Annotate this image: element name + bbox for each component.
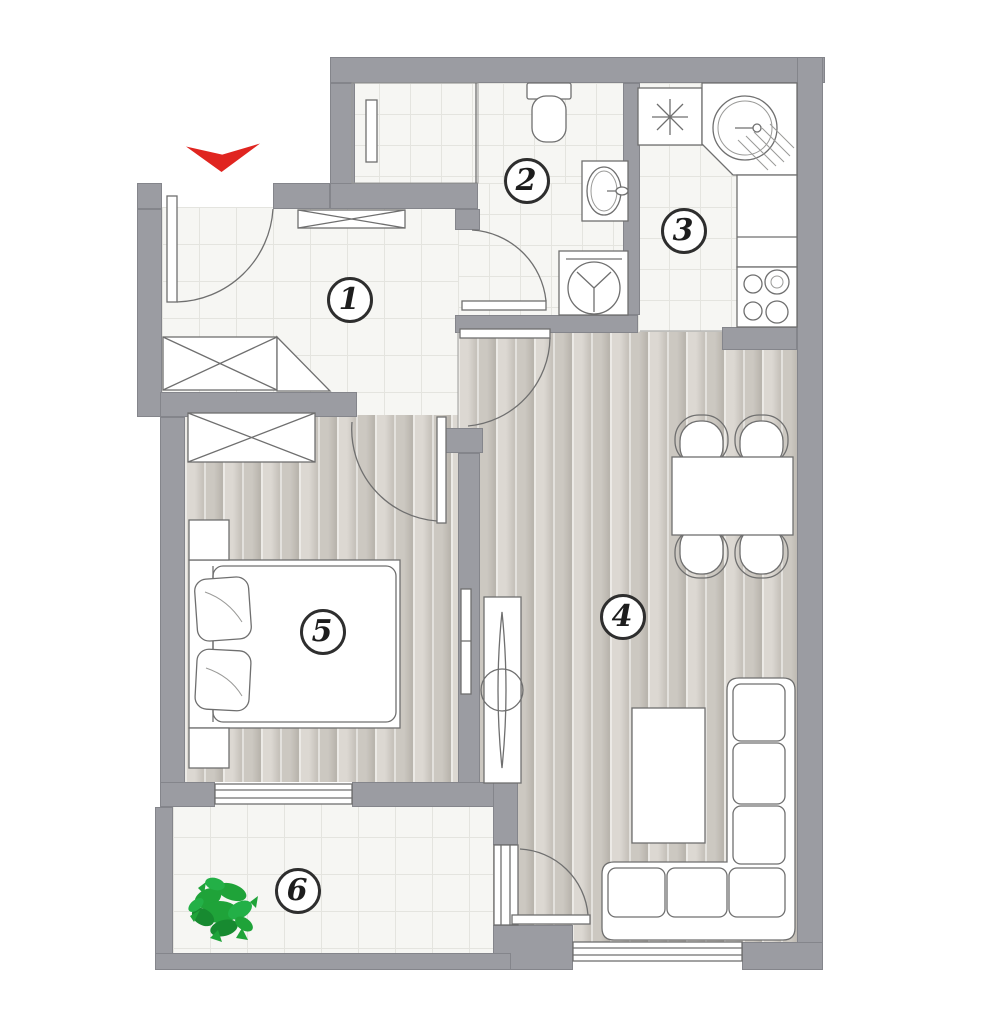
room-number: 2 — [516, 166, 537, 196]
wall-living-bottom-right — [742, 942, 823, 970]
entrance-arrow — [186, 142, 260, 172]
wall-bathroom-door-stub — [455, 209, 480, 230]
wall-entry-corner — [137, 183, 162, 209]
room-number: 3 — [673, 216, 694, 246]
room-badge-living-room: 4 — [600, 594, 646, 640]
balcony-floor — [173, 800, 493, 955]
kitchen-floor — [638, 83, 797, 332]
wall-door-block — [440, 428, 483, 453]
wall-bathroom-kitchen — [623, 83, 640, 315]
wall-balcony-left — [155, 807, 173, 968]
room-badge-balcony: 6 — [275, 868, 321, 914]
room-badge-hall: 1 — [327, 277, 373, 323]
room-number: 5 — [312, 617, 333, 647]
wall-hall-bottom — [160, 392, 357, 417]
wall-hall-top-right — [273, 183, 330, 209]
bathroom-floor-upper — [348, 83, 625, 183]
wall-balcony-bottom — [155, 953, 511, 970]
wall-kitchen-bottom — [722, 327, 797, 350]
wall-bedroom-left — [160, 417, 185, 783]
room-badge-kitchen: 3 — [661, 208, 707, 254]
room-badge-bathroom: 2 — [504, 158, 550, 204]
room-number: 4 — [612, 602, 633, 632]
wall-bathroom-bottom — [455, 315, 638, 333]
room-number: 6 — [287, 876, 308, 906]
wall-hall-bathroom — [330, 183, 478, 209]
wall-bathroom-left — [330, 83, 355, 185]
floor-plan: 1 2 3 4 5 6 — [0, 0, 996, 1024]
wall-right — [797, 57, 823, 970]
hall-floor — [162, 207, 458, 415]
room-badge-bedroom: 5 — [300, 609, 346, 655]
wall-top — [330, 57, 825, 83]
room-number: 1 — [339, 285, 360, 315]
wall-bedroom-living — [458, 453, 480, 783]
wall-balcony-door-top — [493, 782, 518, 845]
living-room-window — [573, 942, 742, 961]
bathroom-floor-lower — [458, 183, 625, 315]
bedroom-floor — [185, 415, 458, 782]
wall-bedroom-bottom-left — [160, 782, 215, 807]
wall-hall-left — [137, 209, 162, 417]
